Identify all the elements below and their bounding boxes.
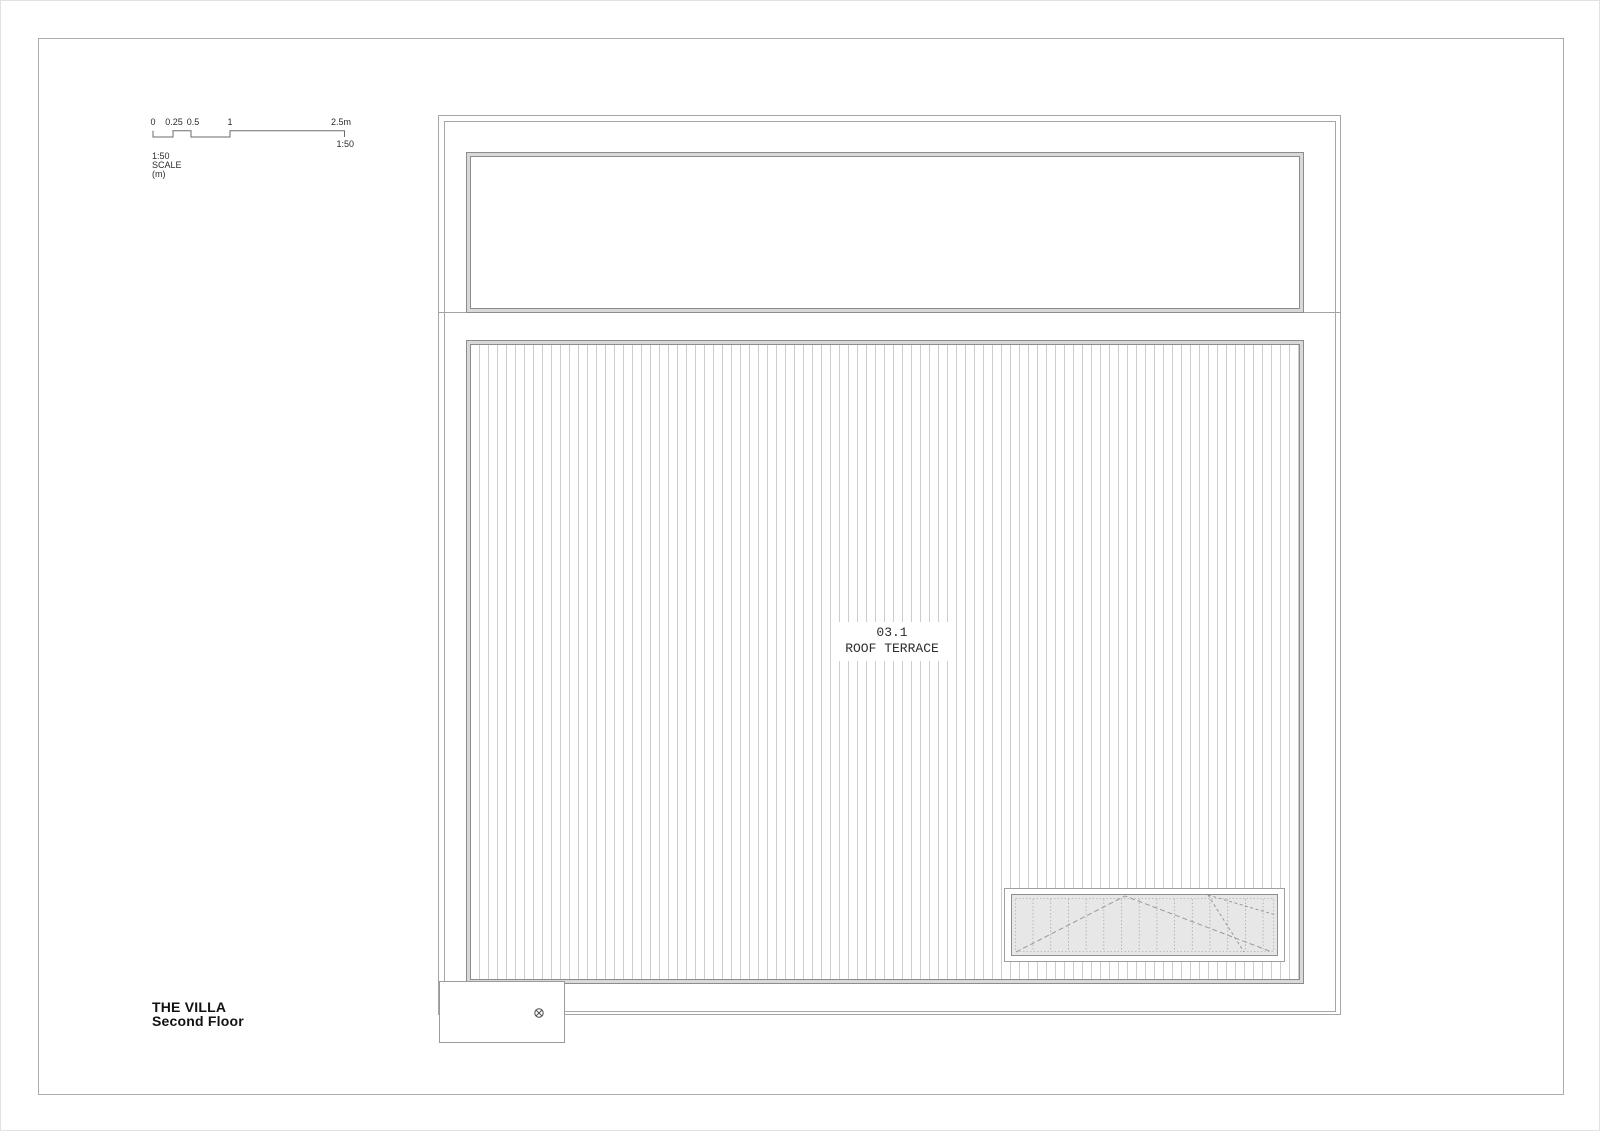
scale-bar-rule [151,129,348,139]
scale-caption: 1:50 SCALE (m) [152,152,182,179]
upper-void-area [466,152,1304,313]
floor-subtitle: Second Floor [152,1014,244,1028]
room-name: ROOF TERRACE [845,641,939,657]
skylight [1004,888,1285,962]
scale-ratio-label: 1:50 [336,140,354,149]
scale-tick-label: 2.5m [331,118,351,127]
drain-symbol-icon [532,1006,546,1020]
decking-hatch [470,344,1300,980]
title-block: THE VILLA Second Floor [152,1000,244,1028]
scale-tick-label: 1 [227,118,232,127]
room-number: 03.1 [845,625,939,641]
scale-tick-label: 0.5 [187,118,200,127]
project-title: THE VILLA [152,1000,244,1014]
roof-access-box [439,981,565,1043]
scale-tick-label: 0.25 [165,118,183,127]
room-label: 03.1 ROOF TERRACE [836,622,948,661]
drawing-sheet: 0 0.25 0.5 1 2.5m 1:50 1:50 SCALE (m) 03… [0,0,1600,1131]
upper-void-inner [470,156,1300,309]
scale-tick-label: 0 [150,118,155,127]
